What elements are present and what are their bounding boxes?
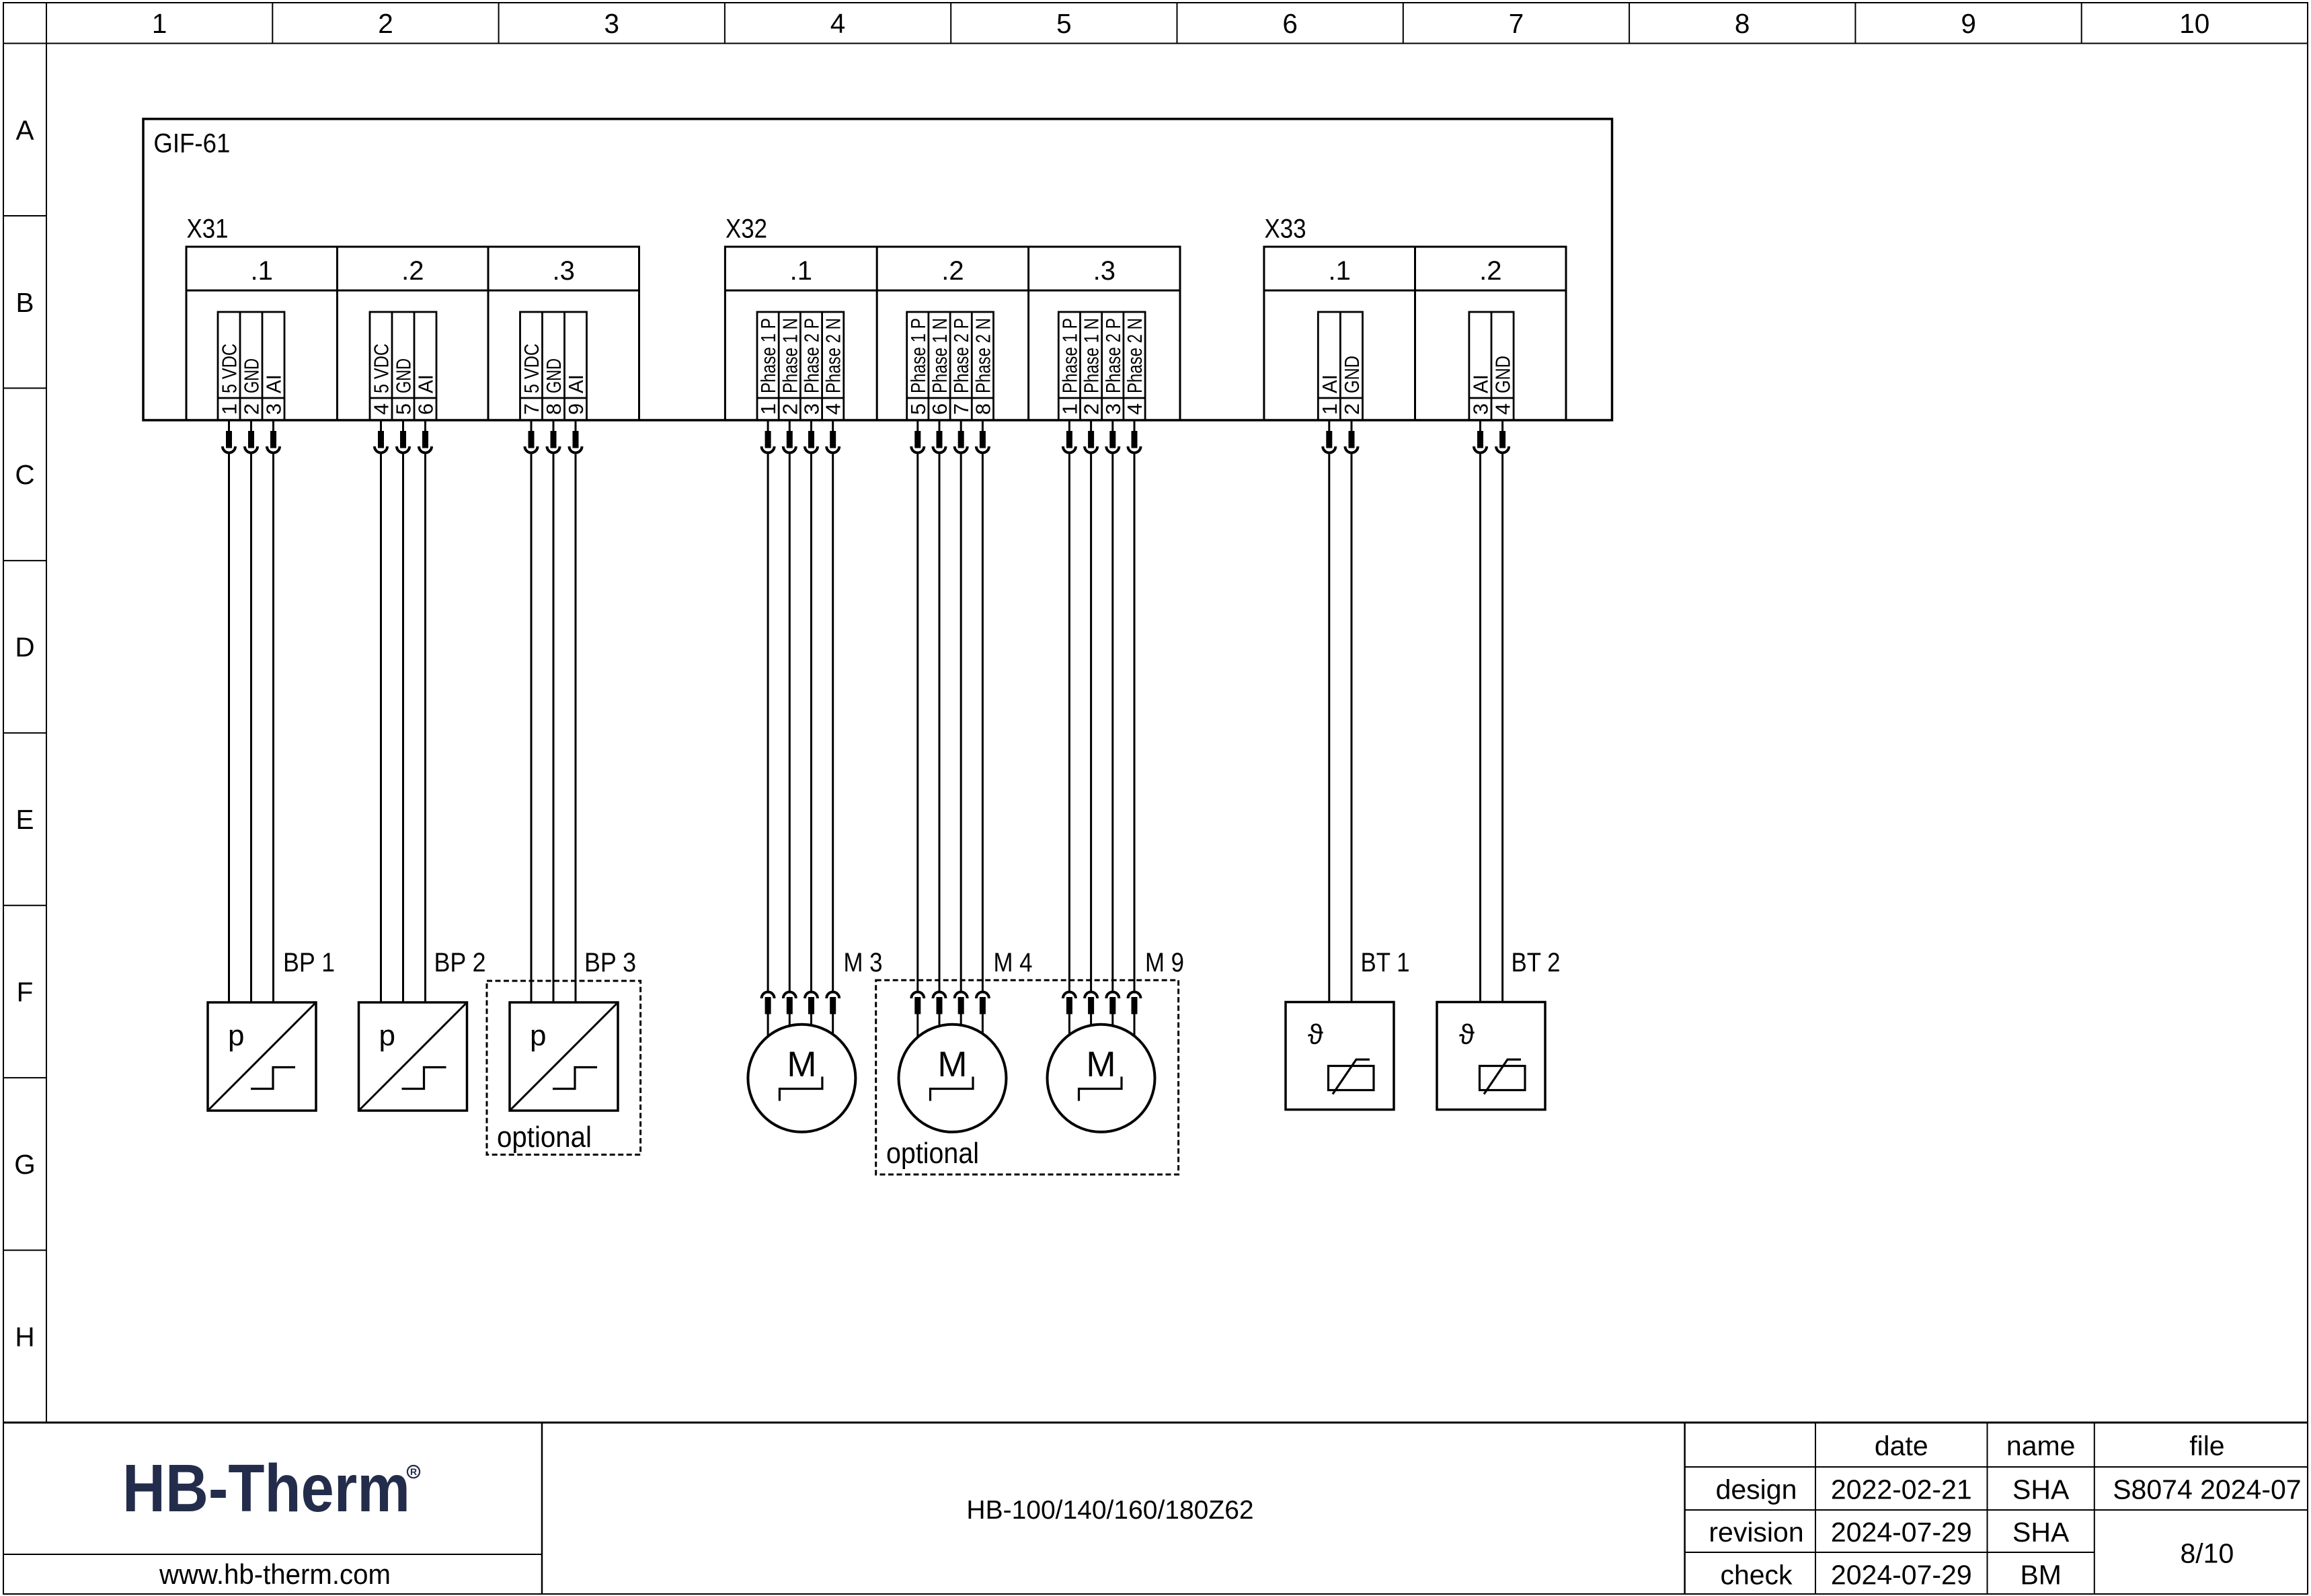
svg-text:2: 2 [378, 8, 393, 39]
svg-text:Phase 2 N: Phase 2 N [822, 318, 845, 393]
svg-text:GND: GND [392, 358, 416, 393]
svg-text:7: 7 [1509, 8, 1524, 39]
svg-text:file: file [2189, 1431, 2224, 1462]
svg-text:M 3: M 3 [844, 948, 883, 977]
svg-text:2: 2 [778, 403, 801, 415]
svg-text:X31: X31 [187, 214, 229, 244]
svg-text:BP 2: BP 2 [434, 948, 486, 977]
svg-text:8: 8 [971, 403, 994, 415]
svg-text:Phase 1 P: Phase 1 P [1058, 318, 1081, 393]
svg-text:4: 4 [830, 8, 846, 39]
svg-text:B: B [15, 287, 34, 318]
svg-text:.1: .1 [1329, 256, 1351, 286]
svg-text:3: 3 [604, 8, 620, 39]
svg-text:Phase 2 N: Phase 2 N [1123, 318, 1146, 393]
svg-text:3: 3 [1469, 403, 1493, 415]
svg-text:2022-02-21: 2022-02-21 [1831, 1474, 1972, 1505]
svg-text:5 VDC: 5 VDC [218, 344, 241, 393]
svg-text:Phase 1 N: Phase 1 N [928, 318, 951, 393]
svg-text:5: 5 [906, 403, 930, 415]
svg-text:www.hb-therm.com: www.hb-therm.com [159, 1558, 391, 1590]
svg-text:S8074 2024-07: S8074 2024-07 [2113, 1474, 2301, 1505]
svg-text:HB-100/140/160/180Z62: HB-100/140/160/180Z62 [966, 1496, 1253, 1525]
svg-text:.1: .1 [251, 256, 273, 286]
svg-text:Phase 2 P: Phase 2 P [800, 318, 824, 393]
svg-text:3: 3 [800, 403, 824, 415]
svg-text:X33: X33 [1265, 214, 1306, 244]
svg-text:name: name [2006, 1431, 2076, 1462]
svg-text:3: 3 [262, 403, 286, 415]
svg-text:GND: GND [542, 358, 565, 393]
svg-text:8/10: 8/10 [2180, 1538, 2234, 1569]
svg-text:X32: X32 [726, 214, 767, 244]
svg-text:Phase 1 N: Phase 1 N [778, 318, 801, 393]
svg-text:Phase 1 P: Phase 1 P [906, 318, 930, 393]
svg-text:HB-Therm: HB-Therm [122, 1451, 410, 1526]
svg-text:ϑ: ϑ [1459, 1019, 1475, 1050]
svg-text:R: R [410, 1466, 417, 1477]
svg-text:design: design [1716, 1474, 1797, 1505]
svg-text:BT 1: BT 1 [1361, 948, 1410, 977]
svg-text:p: p [379, 1019, 395, 1052]
svg-text:2024-07-29: 2024-07-29 [1831, 1517, 1972, 1548]
svg-text:5 VDC: 5 VDC [520, 344, 543, 393]
svg-text:4: 4 [1491, 403, 1515, 415]
svg-text:.2: .2 [401, 256, 424, 286]
svg-text:2: 2 [1080, 403, 1103, 415]
svg-text:BP 3: BP 3 [584, 948, 636, 977]
svg-text:p: p [530, 1019, 546, 1052]
svg-text:8: 8 [542, 403, 565, 415]
svg-text:revision: revision [1709, 1517, 1803, 1548]
svg-text:M: M [787, 1045, 816, 1084]
svg-text:SHA: SHA [2012, 1474, 2070, 1505]
svg-text:2: 2 [1340, 403, 1364, 415]
svg-text:AI: AI [1318, 374, 1341, 393]
svg-text:M: M [937, 1045, 967, 1084]
svg-text:.3: .3 [553, 256, 575, 286]
svg-text:AI: AI [1469, 374, 1493, 393]
svg-text:8: 8 [1735, 8, 1750, 39]
svg-text:.1: .1 [790, 256, 812, 286]
svg-text:1: 1 [218, 403, 241, 415]
svg-text:Phase 2 P: Phase 2 P [1101, 318, 1125, 393]
svg-text:BM: BM [2020, 1560, 2062, 1591]
svg-text:10: 10 [2179, 8, 2209, 39]
svg-text:Phase 2 P: Phase 2 P [949, 318, 973, 393]
svg-text:4: 4 [370, 403, 393, 415]
svg-text:BP 1: BP 1 [283, 948, 335, 977]
svg-text:.2: .2 [941, 256, 964, 286]
svg-text:1: 1 [1058, 403, 1081, 415]
svg-text:A: A [15, 114, 34, 145]
svg-text:AI: AI [414, 374, 438, 393]
svg-text:.3: .3 [1093, 256, 1115, 286]
svg-text:M: M [1086, 1045, 1115, 1084]
svg-text:M 9: M 9 [1145, 948, 1184, 977]
svg-text:check: check [1720, 1560, 1793, 1591]
svg-text:M 4: M 4 [994, 948, 1033, 977]
svg-text:SHA: SHA [2012, 1517, 2070, 1548]
svg-text:AI: AI [262, 374, 286, 393]
svg-text:H: H [15, 1321, 34, 1352]
svg-text:5: 5 [392, 403, 416, 415]
svg-text:Phase 1 P: Phase 1 P [756, 318, 780, 393]
svg-text:optional: optional [886, 1137, 979, 1170]
svg-text:F: F [17, 977, 34, 1008]
svg-text:4: 4 [1123, 403, 1146, 415]
svg-text:BT 2: BT 2 [1512, 948, 1561, 977]
svg-text:GND: GND [1340, 356, 1364, 393]
svg-text:date: date [1875, 1431, 1928, 1462]
svg-text:.2: .2 [1479, 256, 1501, 286]
svg-text:2024-07-29: 2024-07-29 [1831, 1560, 1972, 1591]
svg-text:5 VDC: 5 VDC [370, 344, 393, 393]
svg-text:7: 7 [949, 403, 973, 415]
svg-text:G: G [14, 1149, 36, 1180]
svg-text:Phase 1 N: Phase 1 N [1080, 318, 1103, 393]
svg-text:ϑ: ϑ [1308, 1019, 1323, 1050]
svg-text:GND: GND [1491, 356, 1515, 393]
svg-text:6: 6 [414, 403, 438, 415]
svg-text:3: 3 [1101, 403, 1125, 415]
svg-text:optional: optional [497, 1121, 592, 1154]
svg-text:p: p [228, 1019, 244, 1052]
svg-text:AI: AI [564, 374, 588, 393]
svg-text:5: 5 [1056, 8, 1072, 39]
svg-text:C: C [15, 459, 34, 490]
svg-text:D: D [15, 632, 34, 663]
svg-text:6: 6 [928, 403, 951, 415]
svg-text:2: 2 [240, 403, 264, 415]
svg-text:E: E [15, 804, 34, 835]
svg-text:4: 4 [822, 403, 845, 415]
svg-text:9: 9 [1961, 8, 1976, 39]
svg-text:6: 6 [1282, 8, 1298, 39]
svg-text:7: 7 [520, 403, 543, 415]
svg-text:GND: GND [240, 358, 264, 393]
svg-text:1: 1 [756, 403, 780, 415]
svg-text:1: 1 [152, 8, 167, 39]
svg-text:GIF-61: GIF-61 [153, 128, 230, 158]
svg-text:9: 9 [564, 403, 588, 415]
svg-text:1: 1 [1318, 403, 1341, 415]
svg-text:Phase 2 N: Phase 2 N [971, 318, 994, 393]
